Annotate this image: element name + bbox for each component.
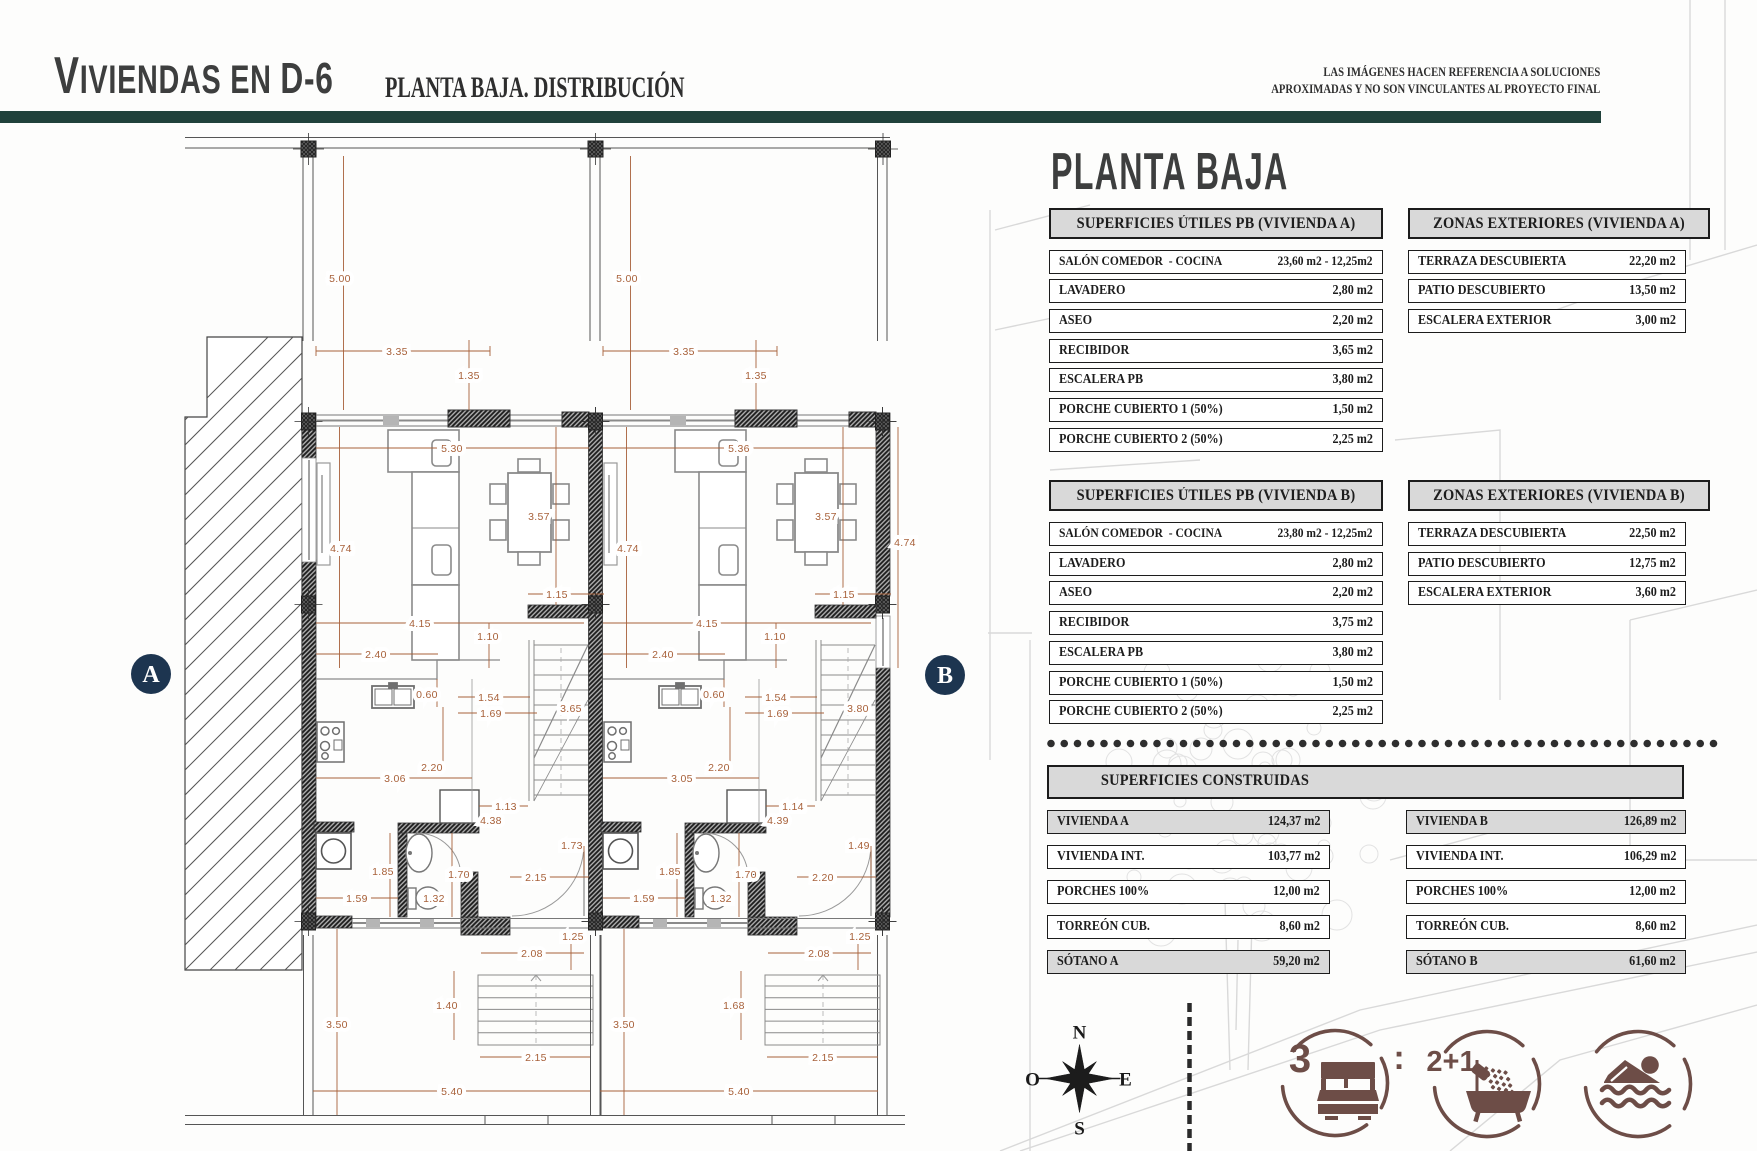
svg-text:1.59: 1.59 xyxy=(633,893,655,905)
svg-text:1.25: 1.25 xyxy=(562,931,584,943)
svg-text:5.00: 5.00 xyxy=(329,273,351,285)
svg-text:1.10: 1.10 xyxy=(764,631,786,643)
svg-text:1.70: 1.70 xyxy=(448,869,470,881)
svg-text:1.32: 1.32 xyxy=(710,893,732,905)
svg-text:5.36: 5.36 xyxy=(728,443,750,455)
svg-text:2.08: 2.08 xyxy=(808,948,830,960)
svg-text:1.85: 1.85 xyxy=(372,866,394,878)
svg-text:4.15: 4.15 xyxy=(696,618,718,630)
svg-text:5.40: 5.40 xyxy=(728,1086,750,1098)
svg-text:3.50: 3.50 xyxy=(326,1019,348,1031)
svg-text:1.54: 1.54 xyxy=(478,692,500,704)
svg-text:2.40: 2.40 xyxy=(652,649,674,661)
svg-text:3.57: 3.57 xyxy=(815,511,837,523)
svg-text:1.54: 1.54 xyxy=(765,692,787,704)
svg-text:5.00: 5.00 xyxy=(616,273,638,285)
svg-text:3.50: 3.50 xyxy=(613,1019,635,1031)
svg-text:2.08: 2.08 xyxy=(521,948,543,960)
svg-text::: : xyxy=(1393,1039,1404,1077)
svg-text:3: 3 xyxy=(1289,1037,1311,1081)
svg-text:1.14: 1.14 xyxy=(782,801,804,813)
svg-text:E: E xyxy=(1119,1070,1132,1091)
svg-text:4.74: 4.74 xyxy=(894,537,916,549)
svg-text:3.35: 3.35 xyxy=(673,346,695,358)
svg-text:N: N xyxy=(1073,1023,1087,1044)
svg-text:1.32: 1.32 xyxy=(423,893,445,905)
svg-text:2.20: 2.20 xyxy=(421,762,443,774)
svg-text:1.69: 1.69 xyxy=(767,708,789,720)
svg-text:3.06: 3.06 xyxy=(384,773,406,785)
svg-text:1.69: 1.69 xyxy=(480,708,502,720)
svg-text:1.25: 1.25 xyxy=(849,931,871,943)
svg-text:A: A xyxy=(142,662,160,688)
svg-text:2+1: 2+1 xyxy=(1426,1046,1475,1078)
svg-text:1.40: 1.40 xyxy=(436,1000,458,1012)
svg-text:1.70: 1.70 xyxy=(735,869,757,881)
svg-text:1.15: 1.15 xyxy=(833,589,855,601)
svg-text:1.10: 1.10 xyxy=(477,631,499,643)
svg-text:3.35: 3.35 xyxy=(386,346,408,358)
svg-text:1.13: 1.13 xyxy=(495,801,517,813)
svg-text:2.15: 2.15 xyxy=(812,1052,834,1064)
svg-text:1.35: 1.35 xyxy=(458,370,480,382)
svg-text:1.15: 1.15 xyxy=(546,589,568,601)
svg-text:4.74: 4.74 xyxy=(617,543,639,555)
svg-text:1.35: 1.35 xyxy=(745,370,767,382)
svg-text:1.59: 1.59 xyxy=(346,893,368,905)
svg-text:5.30: 5.30 xyxy=(441,443,463,455)
svg-text:2.15: 2.15 xyxy=(525,872,547,884)
svg-text:S: S xyxy=(1074,1119,1085,1140)
svg-text:1.49: 1.49 xyxy=(848,840,870,852)
svg-text:4.74: 4.74 xyxy=(330,543,352,555)
svg-text:B: B xyxy=(937,663,953,689)
svg-text:4.39: 4.39 xyxy=(767,815,789,827)
svg-text:5.40: 5.40 xyxy=(441,1086,463,1098)
svg-text:2.15: 2.15 xyxy=(525,1052,547,1064)
svg-text:3.80: 3.80 xyxy=(847,703,869,715)
svg-text:4.38: 4.38 xyxy=(480,815,502,827)
svg-text:3.57: 3.57 xyxy=(528,511,550,523)
svg-text:1.68: 1.68 xyxy=(723,1000,745,1012)
svg-text:2.20: 2.20 xyxy=(708,762,730,774)
svg-text:0.60: 0.60 xyxy=(416,689,438,701)
svg-text:1.85: 1.85 xyxy=(659,866,681,878)
svg-text:3.65: 3.65 xyxy=(560,703,582,715)
svg-text:0.60: 0.60 xyxy=(703,689,725,701)
svg-text:O: O xyxy=(1025,1070,1040,1091)
svg-text:2.40: 2.40 xyxy=(365,649,387,661)
svg-text:4.15: 4.15 xyxy=(409,618,431,630)
svg-text:3.05: 3.05 xyxy=(671,773,693,785)
svg-text:1.73: 1.73 xyxy=(561,840,583,852)
svg-text:2.20: 2.20 xyxy=(812,872,834,884)
